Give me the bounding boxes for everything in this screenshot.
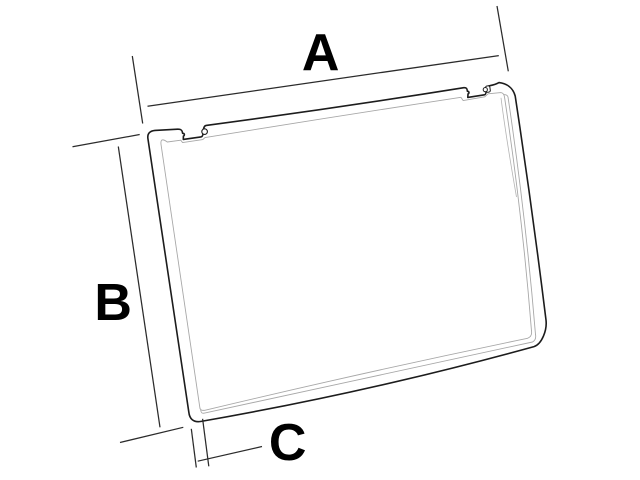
- svg-text:C: C: [269, 414, 307, 472]
- svg-text:A: A: [302, 24, 340, 82]
- svg-text:B: B: [94, 274, 132, 332]
